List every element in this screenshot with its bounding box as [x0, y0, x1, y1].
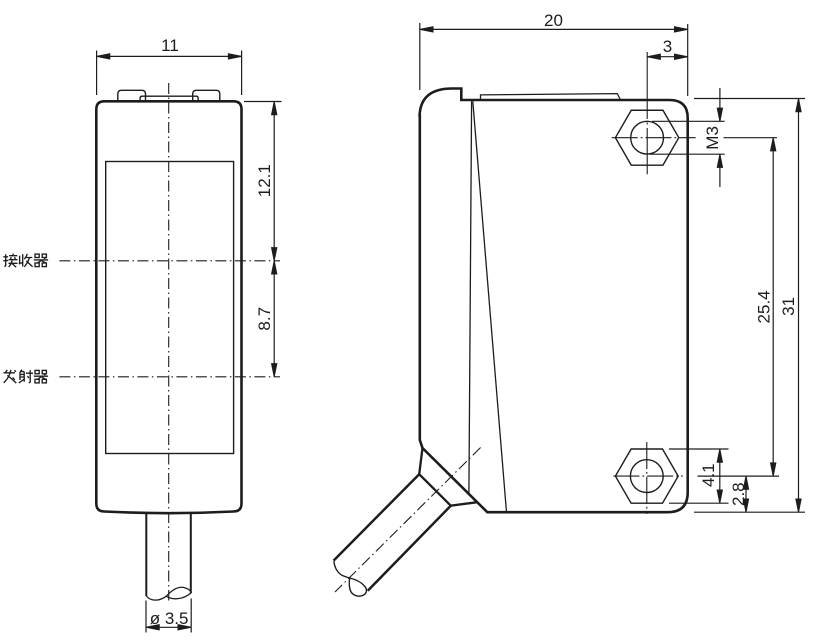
svg-text:31: 31: [779, 297, 798, 316]
svg-text:12.1: 12.1: [255, 164, 274, 197]
svg-text:2.8: 2.8: [729, 482, 748, 506]
svg-text:4.1: 4.1: [699, 463, 718, 487]
svg-text:ø 3.5: ø 3.5: [150, 609, 189, 628]
svg-text:M3: M3: [703, 126, 722, 150]
svg-text:20: 20: [544, 11, 563, 30]
svg-text:8.7: 8.7: [255, 307, 274, 331]
svg-text:11: 11: [161, 36, 179, 55]
svg-text:25.4: 25.4: [755, 290, 774, 323]
svg-text:3: 3: [663, 37, 672, 56]
